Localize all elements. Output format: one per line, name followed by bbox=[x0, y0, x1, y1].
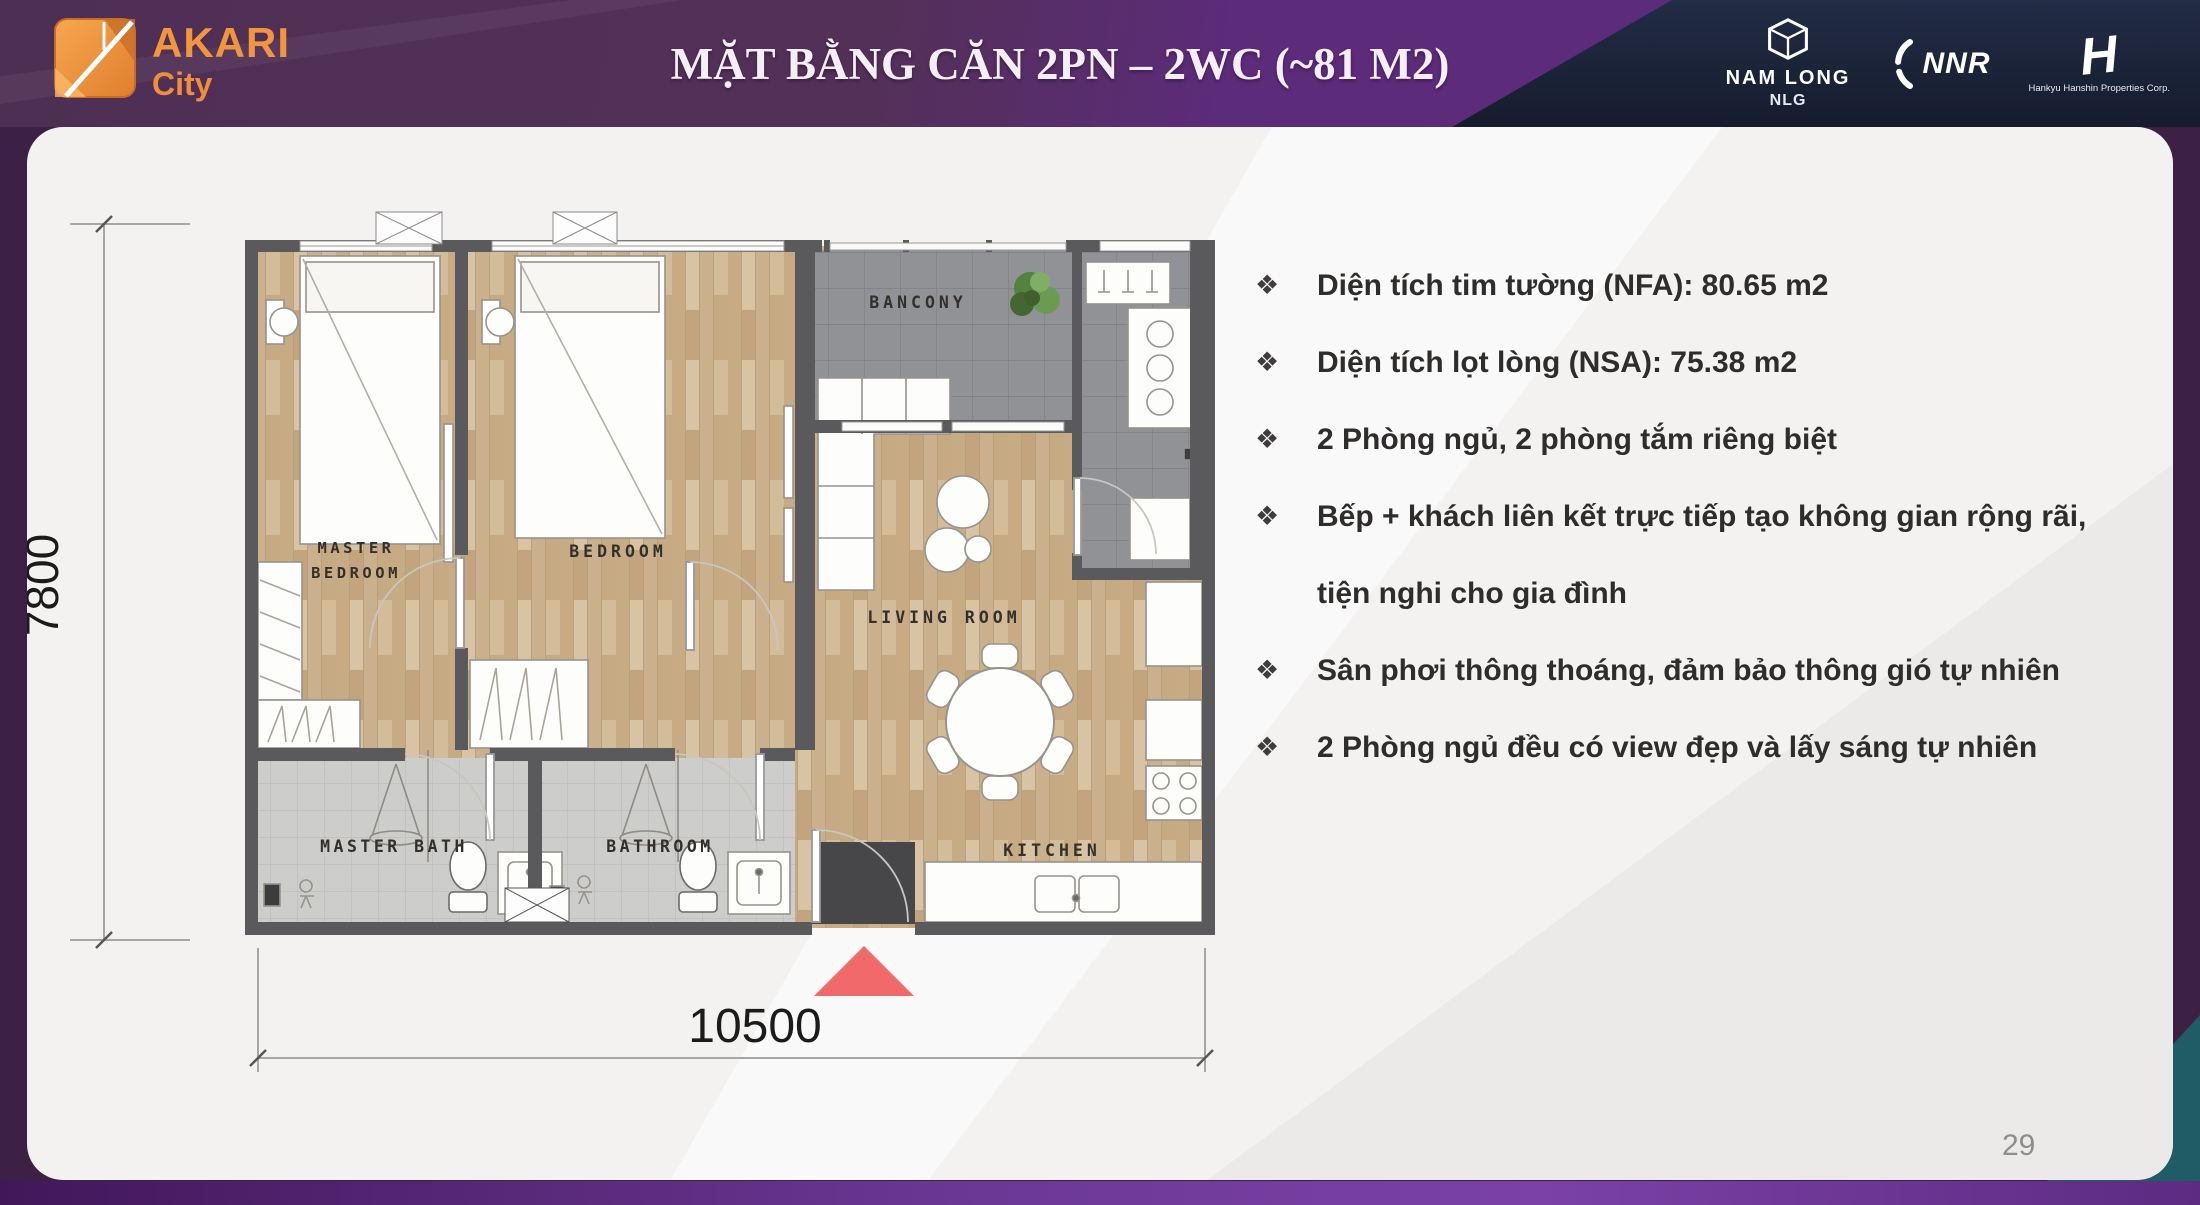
nam-long-cube-icon bbox=[1765, 18, 1811, 65]
room-label-balcony: BANCONY bbox=[869, 293, 967, 312]
nnr-text: NNR bbox=[1922, 47, 1990, 81]
slide-title: MẶT BẰNG CĂN 2PN – 2WC (~81 M2) bbox=[671, 38, 1450, 90]
nnr-logo: NNR bbox=[1888, 36, 1990, 92]
feature-list: ❖ Diện tích tim tường (NFA): 80.65 m2 ❖ … bbox=[1255, 247, 2135, 786]
feature-text: Sân phơi thông thoáng, đảm bảo thông gió… bbox=[1317, 632, 2135, 709]
room-label-bathroom: BATHROOM bbox=[606, 837, 713, 856]
slide: AKARI City MẶT BẰNG CĂN 2PN – 2WC (~81 M… bbox=[0, 0, 2200, 1205]
hankyu-hanshin-logo: H Hankyu Hanshin Properties Corp. bbox=[2028, 33, 2170, 95]
feature-item: ❖ Bếp + khách liên kết trực tiếp tạo khô… bbox=[1255, 478, 2135, 632]
nnr-arc-icon bbox=[1888, 36, 1922, 92]
room-label-living-room: LIVING ROOM bbox=[867, 608, 1020, 627]
akari-logo: AKARI City bbox=[52, 16, 290, 105]
bullet-icon: ❖ bbox=[1255, 709, 1317, 786]
background-bottom-bar bbox=[0, 1181, 2200, 1205]
feature-text: 2 Phòng ngủ, 2 phòng tắm riêng biệt bbox=[1317, 401, 2135, 478]
feature-item: ❖ 2 Phòng ngủ, 2 phòng tắm riêng biệt bbox=[1255, 401, 2135, 478]
nam-long-name: NAM LONG bbox=[1726, 67, 1851, 90]
bullet-icon: ❖ bbox=[1255, 401, 1317, 478]
bullet-icon: ❖ bbox=[1255, 324, 1317, 401]
dimension-height: 7800 bbox=[27, 534, 68, 636]
hankyu-h-icon: H bbox=[2078, 31, 2120, 81]
content-panel: MASTER BEDROOM BEDROOM BANCONY LIVING RO… bbox=[27, 127, 2173, 1180]
feature-item: ❖ Diện tích tim tường (NFA): 80.65 m2 bbox=[1255, 247, 2135, 324]
room-label-master-bedroom-line2: BEDROOM bbox=[311, 564, 401, 582]
partner-logos: NAM LONG NLG NNR H Hankyu Hanshin Proper… bbox=[1726, 0, 2170, 127]
feature-text: Diện tích lọt lòng (NSA): 75.38 m2 bbox=[1317, 324, 2135, 401]
header: AKARI City MẶT BẰNG CĂN 2PN – 2WC (~81 M… bbox=[0, 0, 2200, 127]
room-label-bedroom: BEDROOM bbox=[569, 542, 667, 561]
feature-item: ❖ 2 Phòng ngủ đều có view đẹp và lấy sán… bbox=[1255, 709, 2135, 786]
room-label-master-bath: MASTER BATH bbox=[320, 837, 468, 856]
entrance-arrow-icon bbox=[814, 946, 914, 996]
bullet-icon: ❖ bbox=[1255, 247, 1317, 324]
brand-city: City bbox=[152, 68, 290, 100]
floor-plan: MASTER BEDROOM BEDROOM BANCONY LIVING RO… bbox=[27, 127, 1277, 1102]
room-label-master-bedroom-line1: MASTER bbox=[318, 539, 395, 557]
room-label-kitchen: KITCHEN bbox=[1003, 841, 1101, 860]
feature-text: 2 Phòng ngủ đều có view đẹp và lấy sáng … bbox=[1317, 709, 2135, 786]
feature-item: ❖ Diện tích lọt lòng (NSA): 75.38 m2 bbox=[1255, 324, 2135, 401]
page-number: 29 bbox=[2002, 1129, 2035, 1163]
dimension-width: 10500 bbox=[688, 1000, 821, 1053]
akari-logo-icon bbox=[52, 16, 138, 105]
feature-item: ❖ Sân phơi thông thoáng, đảm bảo thông g… bbox=[1255, 632, 2135, 709]
feature-text: Bếp + khách liên kết trực tiếp tạo không… bbox=[1317, 478, 2135, 632]
bullet-icon: ❖ bbox=[1255, 632, 1317, 709]
bullet-icon: ❖ bbox=[1255, 478, 1317, 555]
feature-text: Diện tích tim tường (NFA): 80.65 m2 bbox=[1317, 247, 2135, 324]
brand-name: AKARI bbox=[152, 22, 290, 64]
nam-long-code: NLG bbox=[1770, 92, 1807, 110]
nam-long-logo: NAM LONG NLG bbox=[1726, 18, 1851, 110]
